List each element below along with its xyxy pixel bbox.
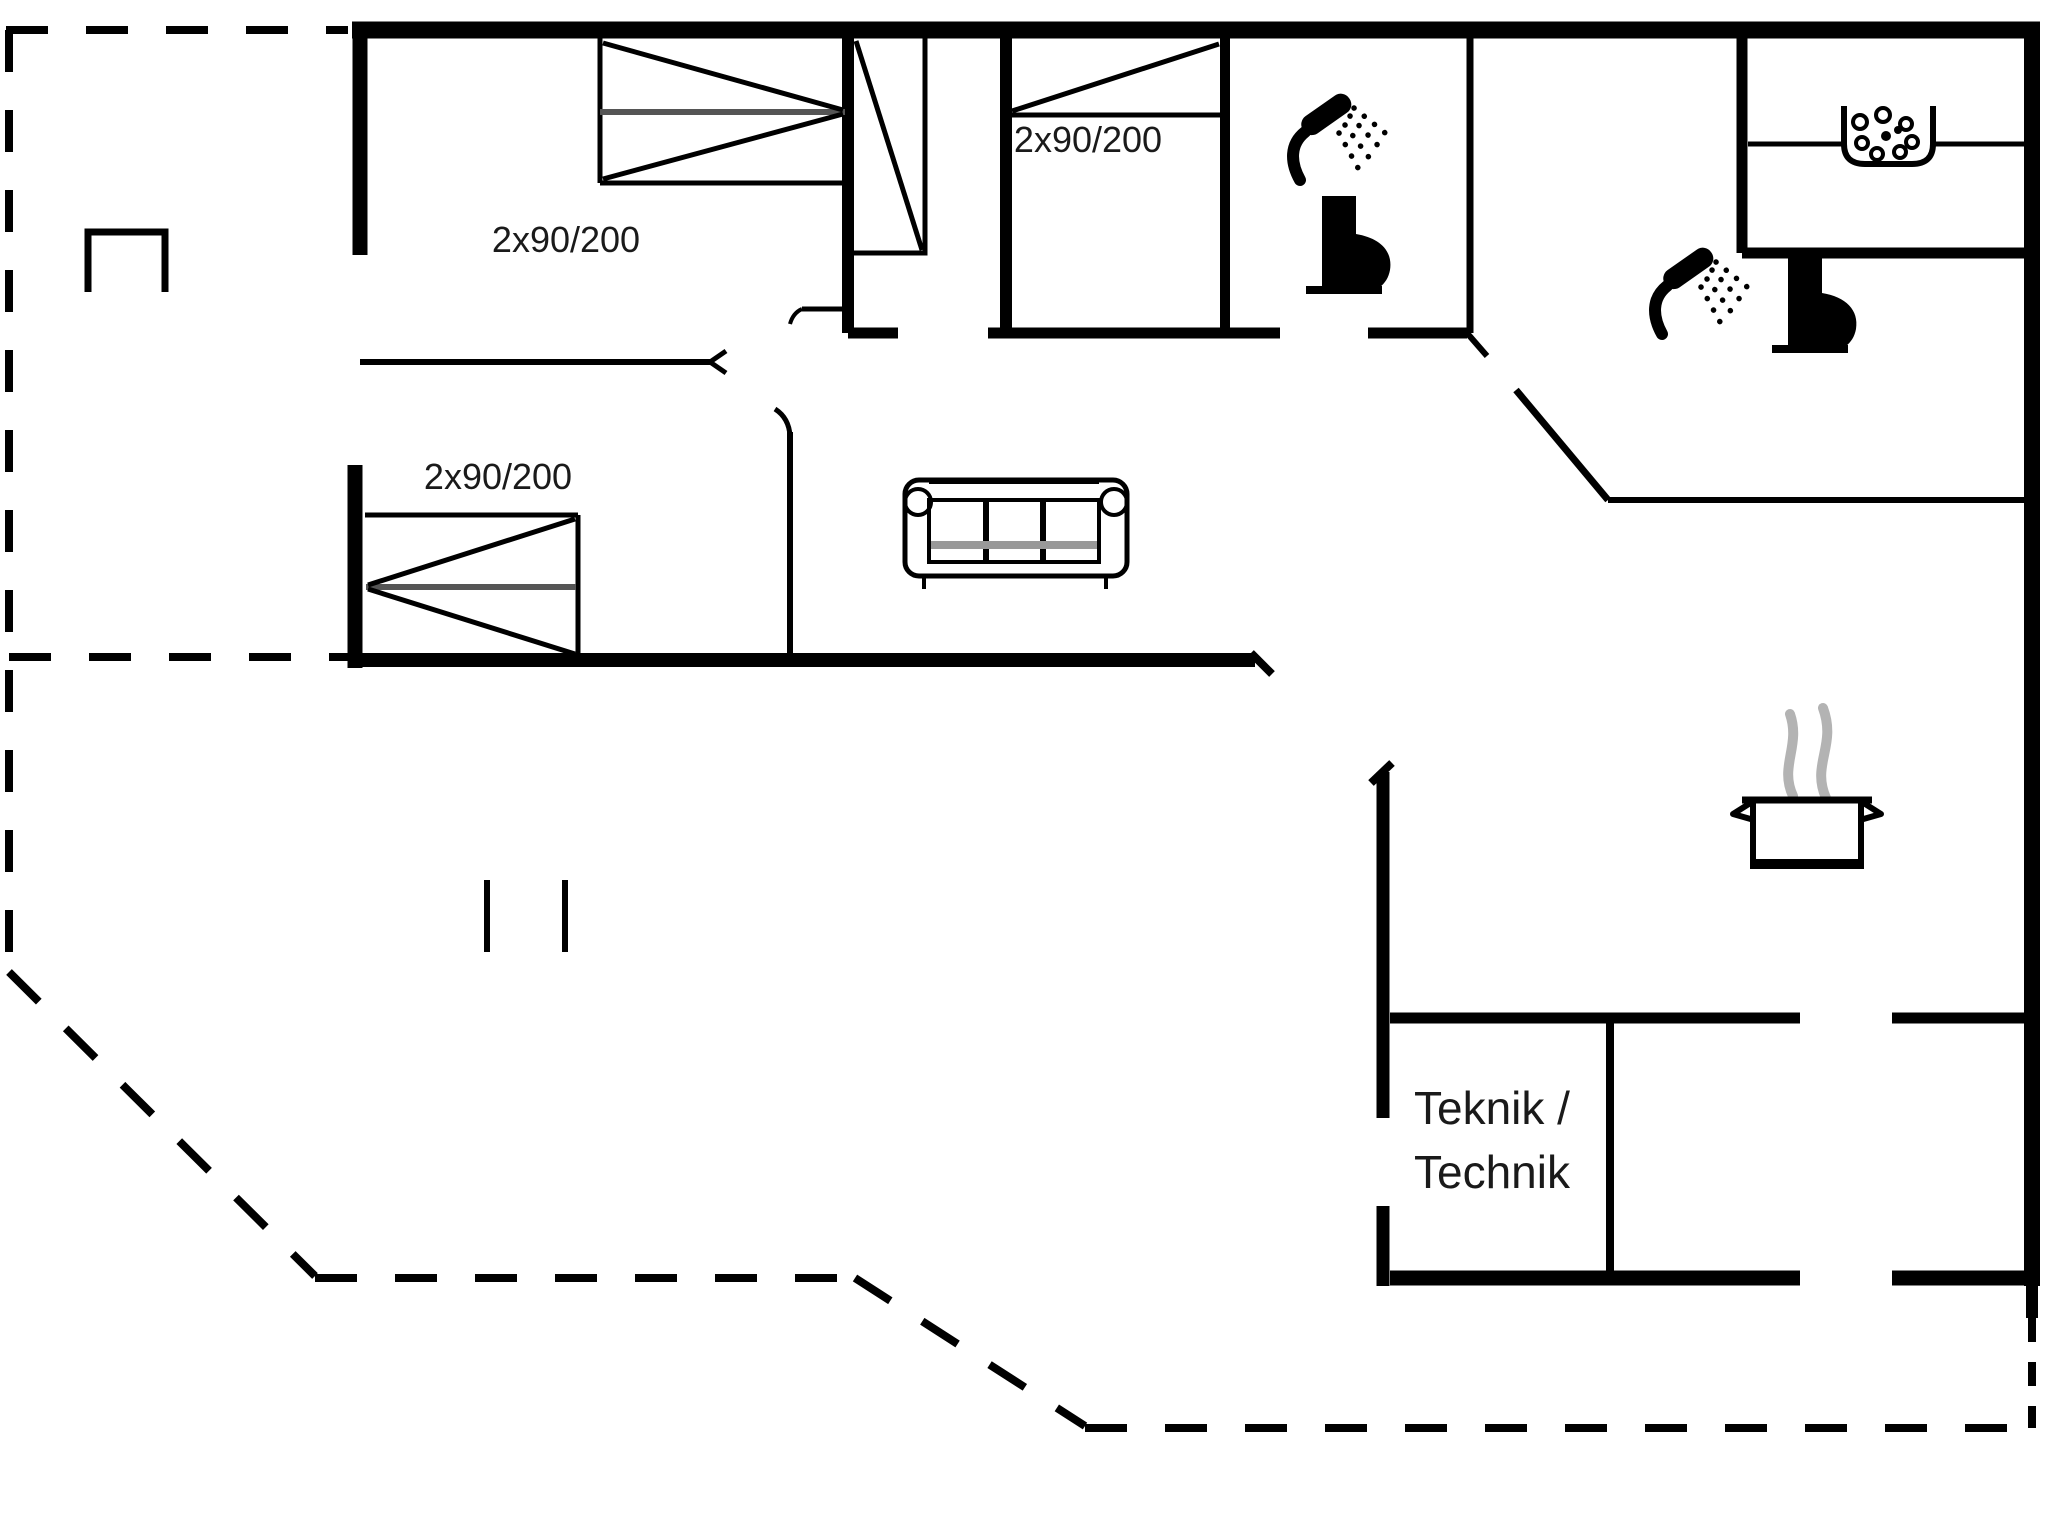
toilet-icon [1306, 196, 1390, 294]
double-bed-1-symbol [600, 38, 848, 183]
shower-icon [1655, 244, 1756, 334]
floor-plan: 2x90/200 2x90/200 2x90/200 [0, 0, 2048, 1536]
cooking-pot-icon [1733, 800, 1881, 866]
door-leaf [790, 309, 846, 324]
toilet-icon [1772, 255, 1856, 353]
technical-room-label-line2: Technik [1414, 1146, 1571, 1198]
sink-basin-icon [1844, 106, 1933, 164]
double-bed-2-symbol [1010, 44, 1222, 115]
bed3-size-label: 2x90/200 [424, 456, 572, 497]
bed1-size-label: 2x90/200 [492, 219, 640, 260]
bed2-size-label: 2x90/200 [1014, 119, 1162, 160]
wardrobe-symbol [853, 38, 925, 253]
terrace-bench-symbol [88, 232, 165, 292]
shower-icon [1293, 90, 1394, 180]
steam-icon [1788, 708, 1827, 798]
double-bed-3-symbol [365, 515, 578, 656]
technical-room-label-line1: Teknik / [1414, 1082, 1570, 1134]
exterior-walls [352, 22, 2040, 1318]
floor-plan-canvas: 2x90/200 2x90/200 2x90/200 [0, 0, 2048, 1536]
sofa-symbol [905, 480, 1127, 589]
